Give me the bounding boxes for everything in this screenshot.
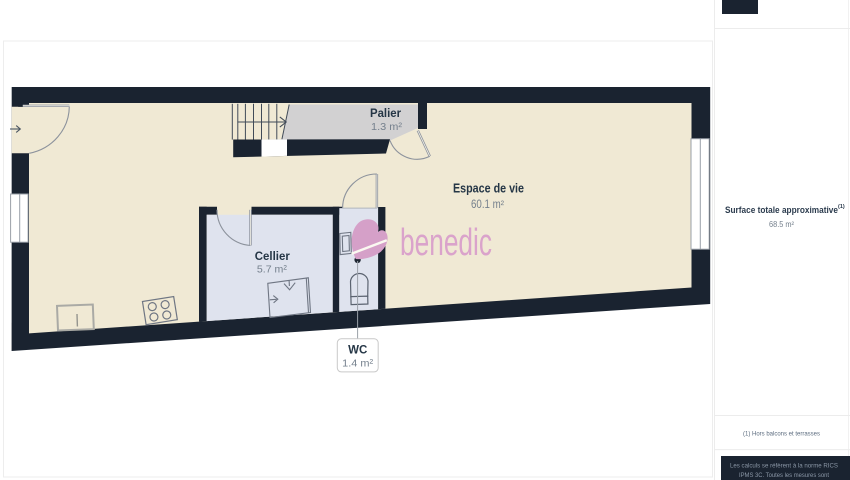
svg-text:1.4 m²: 1.4 m² bbox=[342, 358, 374, 370]
svg-text:1.3 m²: 1.3 m² bbox=[371, 121, 403, 133]
svg-text:Espace de vie: Espace de vie bbox=[453, 181, 524, 196]
svg-text:(1): (1) bbox=[838, 204, 845, 210]
svg-text:68.5 m²: 68.5 m² bbox=[769, 220, 794, 229]
svg-text:WC: WC bbox=[348, 345, 367, 357]
svg-text:Les calculs se réfèrent à la n: Les calculs se réfèrent à la norme RICS bbox=[730, 463, 839, 470]
svg-text:Cellier: Cellier bbox=[255, 251, 291, 263]
svg-text:Surface totale approximative: Surface totale approximative bbox=[725, 205, 838, 216]
svg-text:5.7 m²: 5.7 m² bbox=[257, 264, 287, 276]
svg-text:60.1 m²: 60.1 m² bbox=[471, 199, 504, 211]
svg-text:Palier: Palier bbox=[370, 108, 402, 120]
svg-text:IPMS 3C. Toutes les mesures so: IPMS 3C. Toutes les mesures sont bbox=[739, 472, 829, 479]
svg-text:(1) Hors balcons et terrasses: (1) Hors balcons et terrasses bbox=[743, 431, 821, 438]
svg-text:benedic: benedic bbox=[400, 222, 492, 264]
